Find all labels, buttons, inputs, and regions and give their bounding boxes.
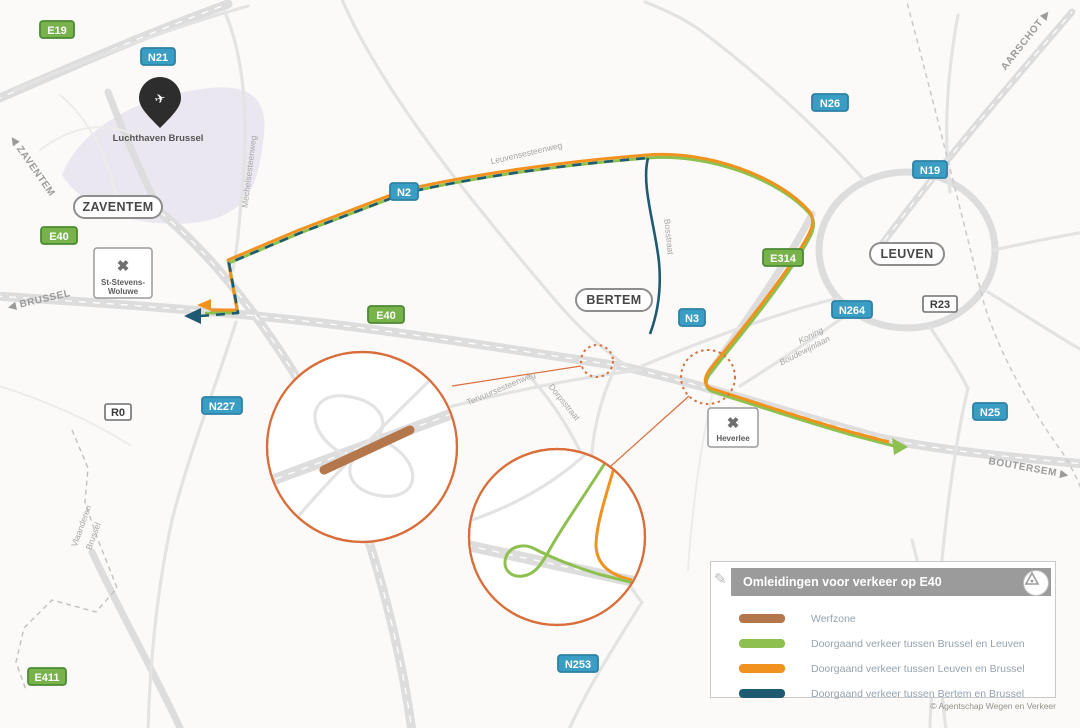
shield-n25: N25	[973, 403, 1007, 420]
svg-text:N21: N21	[148, 52, 168, 64]
interchange-icon: ✖	[117, 258, 130, 275]
svg-text:E411: E411	[34, 672, 59, 684]
svg-text:N2: N2	[397, 187, 411, 199]
town-bertem: BERTEM	[576, 289, 652, 311]
legend-panel: ✎ Omleidingen voor verkeer op E40 Werfzo…	[710, 561, 1056, 698]
map: Vlaanderen Brussel	[0, 0, 1080, 728]
inset-werfzone	[262, 352, 462, 542]
direction-brussel: ◀ BRUSSEL	[6, 288, 71, 313]
inset-heverlee	[465, 438, 650, 625]
street-leuvensesteenweg: Leuvensesteenweg	[490, 140, 564, 166]
airport-label: Luchthaven Brussel	[113, 133, 204, 144]
svg-text:ZAVENTEM: ZAVENTEM	[82, 200, 153, 214]
shield-n19: N19	[913, 161, 947, 178]
shield-e314: E314	[763, 249, 803, 266]
town-zaventem: ZAVENTEM	[74, 196, 162, 218]
svg-text:N19: N19	[920, 165, 940, 177]
legend-items: Werfzone Doorgaand verkeer tussen Brusse…	[711, 596, 1055, 706]
awv-logo-icon	[1023, 570, 1049, 596]
legend-label: Doorgaand verkeer tussen Leuven en Bruss…	[811, 663, 1025, 675]
interchange-st-stevens-woluwe: ✖ St-Stevens- Woluwe	[94, 248, 152, 298]
shield-n3: N3	[679, 309, 705, 326]
legend-title: Omleidingen voor verkeer op E40	[743, 575, 942, 589]
shield-n26: N26	[812, 94, 848, 111]
svg-text:N25: N25	[980, 407, 1000, 419]
shield-n253: N253	[558, 655, 598, 672]
svg-text:St-Stevens-: St-Stevens-	[101, 278, 145, 287]
legend-label: Doorgaand verkeer tussen Bertem en Bruss…	[811, 688, 1024, 700]
legend-label: Werfzone	[811, 613, 856, 625]
svg-text:N26: N26	[820, 98, 840, 110]
shield-e411: E411	[28, 668, 66, 685]
svg-text:R23: R23	[930, 299, 950, 311]
svg-text:E314: E314	[770, 253, 797, 265]
svg-text:E40: E40	[49, 231, 69, 243]
shield-r23: R23	[923, 296, 957, 312]
svg-text:Woluwe: Woluwe	[108, 287, 139, 296]
svg-text:LEUVEN: LEUVEN	[880, 247, 933, 261]
legend-swatch	[739, 614, 785, 623]
shield-n2: N2	[390, 183, 418, 200]
svg-text:N264: N264	[839, 305, 866, 317]
copyright-notice: © Agentschap Wegen en Verkeer	[710, 701, 1056, 711]
svg-text:N227: N227	[209, 401, 235, 413]
svg-text:N253: N253	[565, 659, 591, 671]
legend-item-werfzone: Werfzone	[739, 606, 1055, 631]
svg-text:BERTEM: BERTEM	[586, 293, 641, 307]
legend-item-brussel-leuven: Doorgaand verkeer tussen Brussel en Leuv…	[739, 631, 1055, 656]
legend-item-leuven-brussel: Doorgaand verkeer tussen Leuven en Bruss…	[739, 656, 1055, 681]
shield-e19: E19	[40, 21, 74, 38]
street-bosstraat: Bosstraat	[662, 218, 676, 255]
svg-text:E19: E19	[47, 25, 67, 37]
regional-boundary: Vlaanderen Brussel	[16, 430, 117, 690]
legend-swatch	[739, 639, 785, 648]
legend-header: ✎ Omleidingen voor verkeer op E40	[711, 568, 1055, 596]
shield-n264: N264	[832, 301, 872, 318]
interchange-icon: ✖	[727, 415, 740, 432]
shield-n21: N21	[141, 48, 175, 65]
svg-text:E40: E40	[376, 310, 396, 322]
shield-r0: R0	[105, 404, 131, 420]
legend-title-bar: Omleidingen voor verkeer op E40	[731, 568, 1051, 596]
svg-text:N3: N3	[685, 313, 699, 325]
town-leuven: LEUVEN	[870, 243, 944, 265]
shield-e40-mid: E40	[368, 306, 404, 323]
shield-n227: N227	[202, 397, 242, 414]
legend-swatch	[739, 689, 785, 698]
shield-e40-west: E40	[41, 227, 77, 244]
svg-text:R0: R0	[111, 407, 125, 419]
pencil-icon: ✎	[714, 570, 727, 588]
svg-text:Heverlee: Heverlee	[716, 434, 750, 443]
legend-label: Doorgaand verkeer tussen Brussel en Leuv…	[811, 638, 1025, 650]
interchange-heverlee: ✖ Heverlee	[708, 408, 758, 447]
legend-swatch	[739, 664, 785, 673]
leader-line	[602, 396, 689, 474]
